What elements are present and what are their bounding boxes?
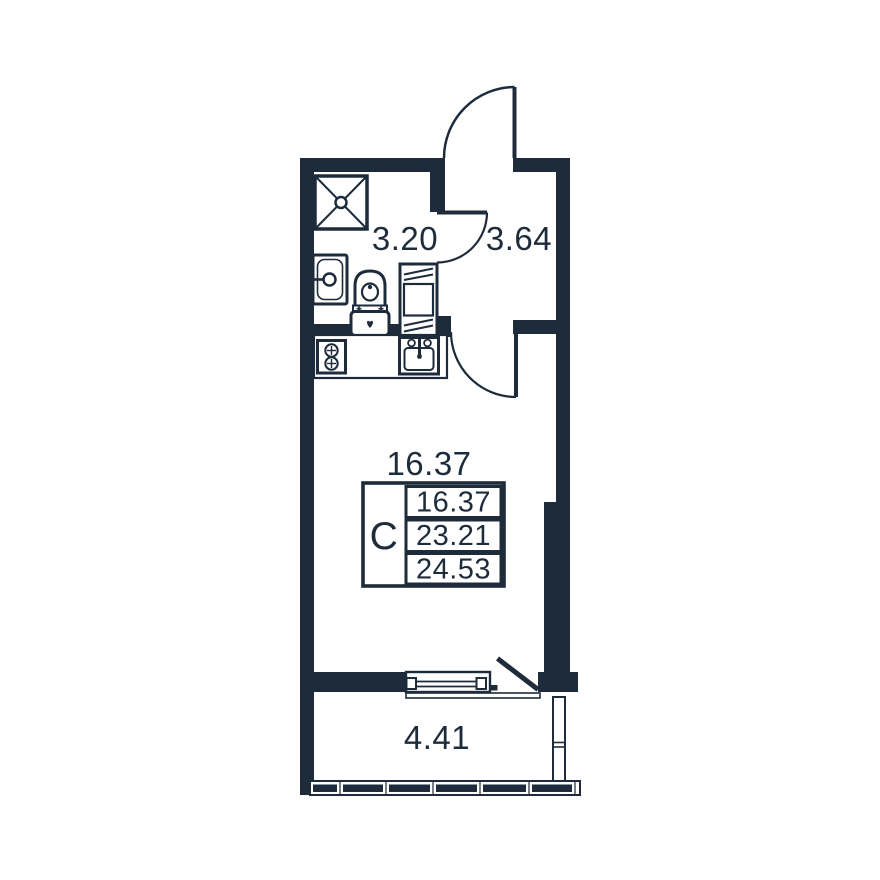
- bathroom-sink-icon: [313, 255, 347, 304]
- wall-left: [300, 158, 314, 795]
- balcony-door-icon: [491, 659, 538, 691]
- wall-bottom-right: [538, 672, 578, 692]
- stove-icon: [318, 341, 346, 374]
- wall-bottom-left: [300, 672, 406, 692]
- toilet-icon: [351, 271, 389, 336]
- unit-type-label: С: [370, 515, 399, 558]
- table-row-3-value: 24.53: [416, 554, 491, 586]
- table-row-1-value: 16.37: [416, 487, 491, 519]
- table-row-2-value: 23.21: [416, 520, 491, 552]
- living-room-door-icon: [451, 332, 518, 397]
- balcony-area-label: 4.41: [404, 719, 470, 756]
- hallway-area-label: 3.64: [486, 220, 552, 257]
- washing-machine-icon: [400, 264, 437, 336]
- bathroom-door-icon: [437, 211, 487, 263]
- floor-plan-svg: С 16.37 23.21 24.53 3.20 3.64 16.37 4.41: [0, 0, 880, 880]
- wall-bathroom-hall-divider: [430, 172, 445, 212]
- info-table: С 16.37 23.21 24.53: [363, 483, 504, 586]
- kitchen-sink-icon: [400, 338, 439, 375]
- living-room-area-label: 16.37: [386, 445, 471, 482]
- wall-right-lower: [544, 502, 570, 672]
- entrance-door-icon: [444, 87, 517, 158]
- wall-right-upper: [556, 158, 570, 502]
- wall-hall-room: [513, 320, 557, 334]
- bathroom-area-label: 3.20: [372, 220, 438, 257]
- floor-plan-image: С 16.37 23.21 24.53 3.20 3.64 16.37 4.41: [0, 0, 880, 880]
- wall-top-left: [300, 158, 445, 172]
- shower-icon: [315, 176, 367, 229]
